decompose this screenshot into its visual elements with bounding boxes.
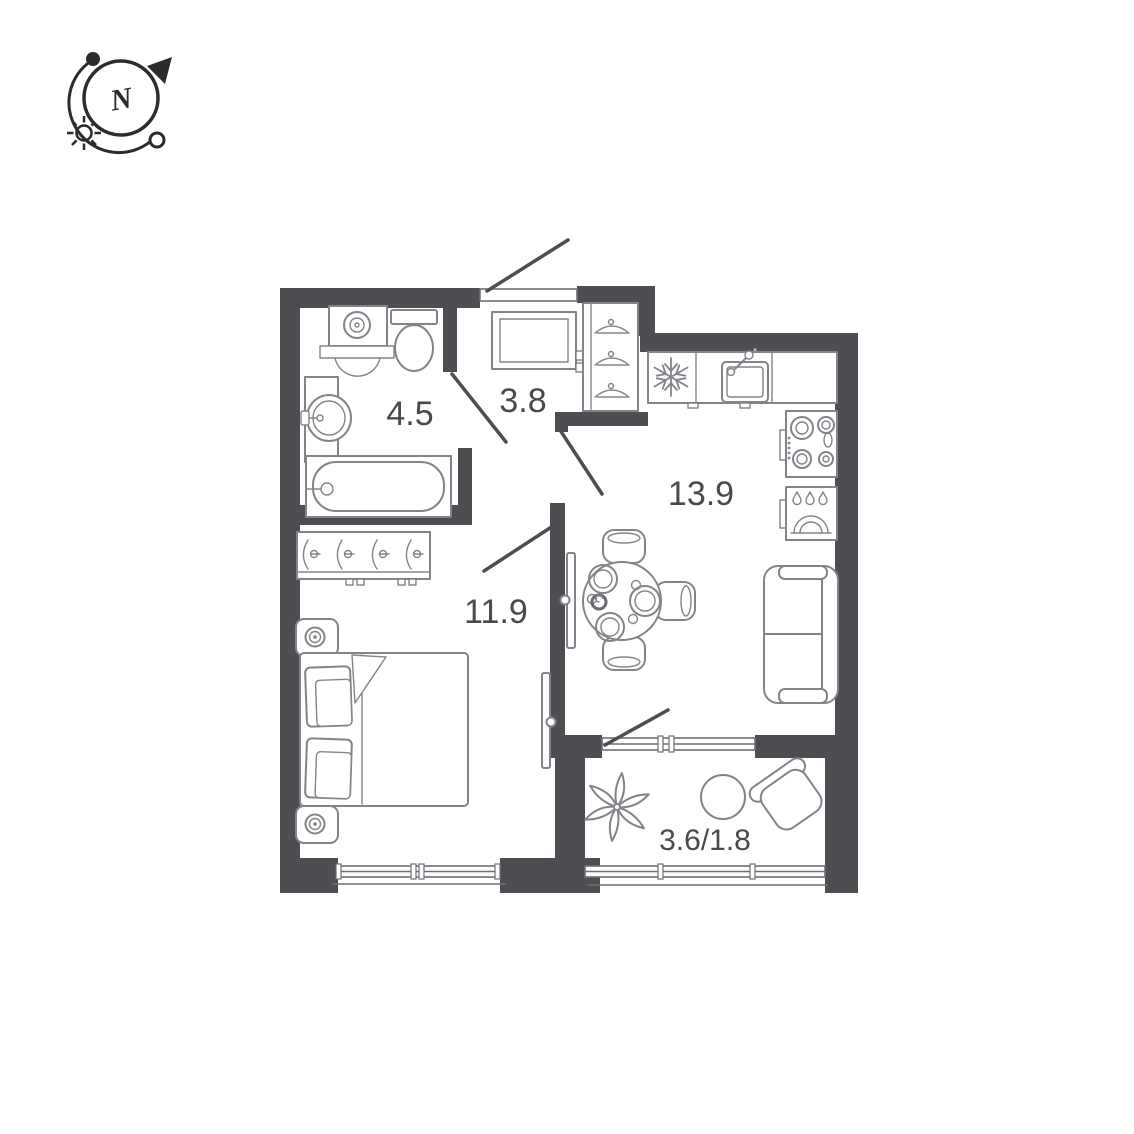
bathroom-area-label: 4.5 [386,395,433,433]
entry-door-swing [487,240,568,291]
wall-kitchen-top [640,333,858,352]
kitchen-door-swing [560,430,602,494]
bathroom-door-swing [452,374,506,442]
balcony-area-label: 3.6/1.8 [659,824,751,857]
bathtub-icon [306,456,451,517]
wall-right [835,333,858,758]
wall-bath-toilet-stub [443,306,457,372]
compass-dot-filled [86,52,100,66]
floor-plan-page: N [0,0,1134,1134]
dishwasher-icon [780,487,837,540]
dining-table-icon [583,530,695,670]
entry-threshold [480,289,577,301]
bedroom-door-swing [484,526,553,571]
wall-kitchen-bottom-left [550,735,602,758]
wall-bedroom-kitchen [550,503,565,737]
bedroom-furniture [296,532,468,843]
wall-hall-bottom-block [555,412,568,432]
washing-machine-icon [320,306,394,376]
plant-icon [583,773,650,842]
compass-dot-open [150,133,164,147]
hall-wardrobe-icon [583,303,638,411]
stove-icon [780,411,837,477]
wash-basin-icon [301,377,351,462]
bedroom-area-label: 11.9 [464,593,528,631]
wall-balcony-right [825,758,858,893]
wall-kitchen-bottom-right [755,735,835,758]
hallway-area-label: 3.8 [499,382,546,420]
wall-wardrobe-right [638,298,655,336]
armchair-icon [747,755,832,838]
wall-bedroom-bottom-left [280,858,338,893]
sofa-icon [764,566,838,703]
kitchen-area-label: 13.9 [668,475,734,513]
coffee-table-icon [701,775,745,819]
bedroom-wardrobe-icon [297,532,430,585]
floor-plan-svg: N [0,0,1134,1134]
wall-left [280,288,300,893]
compass: N [67,52,172,153]
toilet-icon [391,310,437,371]
wall-hall-bottom [555,412,648,426]
double-bed-icon [300,653,468,806]
mirror-icon [492,312,576,369]
